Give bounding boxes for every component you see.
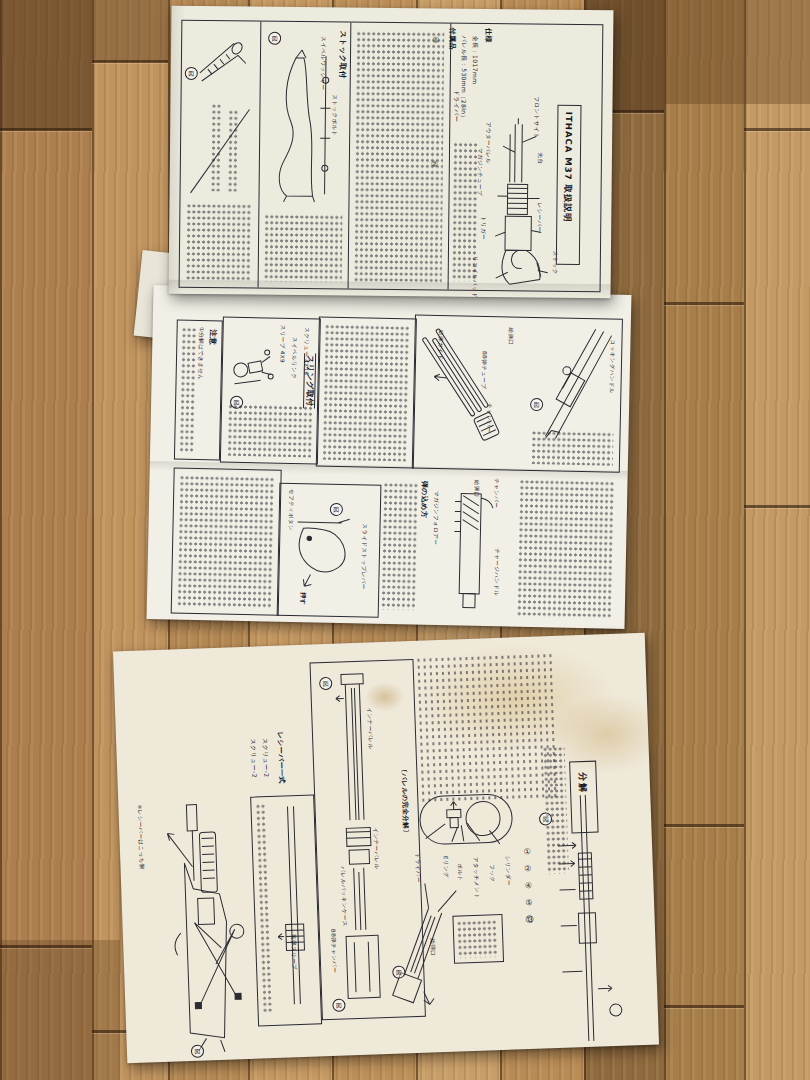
caution-panel: 注意 ①分解はできません: [174, 320, 223, 461]
sling-part-label: スリーブ 4X9: [279, 325, 285, 363]
floor-shadow-patch: [92, 0, 168, 62]
plank-joint: [664, 302, 744, 305]
trigger-guard-diagram: [286, 516, 352, 597]
stock-bolt-label: ストックボルト: [331, 94, 337, 136]
trigger-panel: セフティボタン 図 スライドストップレバー 押す: [277, 483, 382, 618]
text-block: [517, 479, 616, 619]
caution-text: ①分解はできません: [197, 327, 204, 380]
cylinder-part-label: Eリング: [442, 856, 448, 878]
feed-chamber-diagram: [383, 877, 464, 1014]
barrel-caption: 〔バレルの完全分解〕: [400, 766, 409, 836]
sleeve-label: 装弾スリーブ: [290, 934, 297, 970]
caution-heading: 注意: [209, 329, 217, 345]
floor-plank: [744, 0, 810, 1080]
circled-number: ⑬: [520, 911, 539, 929]
text-block: [186, 203, 253, 282]
cylinder-part-label: フック: [489, 864, 495, 882]
plank-joint: [0, 128, 92, 131]
plank-joint: [744, 128, 810, 131]
feed-tube-diagram: [417, 320, 520, 466]
text-panel: [316, 317, 417, 469]
floor-shadow-patch: [664, 0, 810, 104]
receiver-note: ※レシーバーはこっち側: [136, 804, 144, 869]
figure-marker: 図: [191, 1044, 204, 1057]
feed-part-label: BB弾チューブ: [480, 351, 486, 389]
cylinder-part-label: アタッチメント: [472, 857, 479, 899]
column-rule: [258, 22, 262, 288]
feed-port-label: 給弾口: [429, 938, 435, 956]
circled-number: ④: [519, 877, 538, 895]
muzzle-diagram: [194, 29, 251, 92]
loading-panel: 弾の込め方: [377, 476, 432, 617]
text-panel: [171, 467, 282, 615]
gun-part-label: フロントサイト: [533, 96, 539, 138]
gun-part-label: リコイルパッド: [471, 256, 477, 298]
push-label: 押す: [300, 592, 306, 605]
gun-part-label: マガジンチューブ: [477, 148, 483, 196]
feed-part-label: 給弾ガイド: [437, 330, 443, 360]
receiver-set-heading: レシーバー一式: [276, 732, 285, 785]
barrel-strip-diagram: [554, 792, 623, 1044]
feed-part-label: 給弾口: [507, 327, 513, 345]
chamber-section-diagram: [443, 487, 498, 614]
text-block: [179, 327, 198, 453]
text-block: [381, 482, 418, 611]
gun-part-label: アウターバレル: [485, 122, 491, 164]
figure-marker: 図: [268, 32, 281, 45]
manual-page-bottom: レシーバー一式 スクリュー-2 スクリュー-2 ※レシーバーはこっち側 図: [113, 633, 659, 1063]
cylinder-part-label: シリンダー: [504, 856, 511, 886]
floor-plank: [664, 0, 746, 1080]
plank-joint: [744, 505, 810, 508]
text-block: [531, 430, 614, 466]
stock-diagram: [264, 48, 340, 207]
divider-diagonal: [187, 105, 254, 198]
numbered-parts-column: ① ② ④ ⑤ ⑬: [518, 843, 539, 929]
text-block: [264, 214, 343, 283]
sleeve-diagram: [269, 804, 316, 1015]
photo-of-manual-on-wood-floor: { "figure_marker": "図", "title": "ITHACA…: [0, 0, 810, 1080]
figure-marker: 図: [330, 503, 343, 516]
manual-title-box: ITHACA M37 取扱説明: [556, 105, 582, 265]
circled-number: ①: [518, 843, 537, 861]
receiver-panel: ※レシーバーはこっち側 図: [134, 795, 255, 1061]
text-block: [322, 324, 411, 462]
spec-line: バレル長：530mm（28in）: [460, 36, 467, 121]
column-rule: [448, 24, 452, 290]
spec-line: 全長：1017mm: [472, 36, 479, 85]
sling-part-label: スイベルリンク: [291, 337, 297, 379]
section-panel: 給弾口 チャンバー マガジンフォロアー チャージハンドル: [429, 475, 514, 619]
plank-joint: [0, 945, 92, 948]
text-block: [457, 919, 498, 958]
plank-joint: [664, 824, 744, 827]
sling-panel: 図 スリーブ 4X9 スイベルリンク スクリュー 4X18 スリング取付: [220, 316, 321, 464]
floor-shadow-patch: [0, 0, 92, 130]
sling-heading: スリング取付: [303, 353, 316, 408]
feed-part-label: コッキングハンドル: [608, 340, 615, 394]
floor-plank: [0, 0, 94, 1080]
column-rule: [348, 23, 352, 289]
barrel-part-label: インナーバレル: [372, 827, 379, 869]
spec-heading: 仕様: [484, 28, 491, 43]
gun-part-label: レシーバー: [536, 203, 542, 233]
manual-title: ITHACA M37 取扱説明: [563, 112, 573, 223]
top-page-frame: 図 図 ストック取付 スイベルワッシャー ストックボルト ① ② 仕: [179, 20, 604, 292]
barrel-part-label: インナーバレル: [366, 707, 373, 749]
manual-page-middle: 注意 ①分解はできません 図 スリーブ 4X9 スイベルリンク スクリュー 4X…: [147, 285, 632, 629]
figure-marker: 図: [185, 67, 198, 80]
circled-marker: ①: [432, 31, 439, 48]
gun-part-label: トリガー: [480, 216, 486, 240]
receiver-set-item: スクリュー-2: [262, 738, 269, 778]
barrel-part-label: BB弾チャンバー: [330, 929, 337, 973]
receiver-diagram: [146, 801, 255, 1054]
loading-heading: 弾の込め方: [420, 481, 428, 518]
plank-joint: [664, 1005, 744, 1008]
feed-part-label: チャンバー: [486, 403, 492, 433]
barrel-part-label: バレルパッキンケース: [340, 866, 348, 926]
circled-marker: ②: [431, 155, 438, 172]
accessory-item: ドライバー: [453, 90, 459, 123]
disassembly-heading: 分解: [577, 772, 587, 794]
plank-joint: [92, 60, 168, 63]
cocking-handle-diagram: [531, 326, 617, 446]
sling-swivel-diagram: [228, 336, 275, 397]
cylinder-diagram: [416, 789, 518, 850]
section-label: マガジンフォロアー: [432, 491, 439, 545]
circled-number: ⑤: [520, 894, 539, 912]
accessories-heading: 付属品: [448, 28, 455, 50]
text-block: [415, 652, 560, 803]
text-block: [177, 475, 276, 609]
circled-number: ②: [519, 860, 538, 878]
sleeve-panel: 装弾スリーブ: [250, 794, 322, 1026]
text-block: [227, 404, 312, 458]
manual-page-top: 図 図 ストック取付 スイベルワッシャー ストックボルト ① ② 仕: [169, 6, 614, 299]
floor-shadow-patch: [0, 940, 120, 1080]
gun-part-label: 先台: [537, 153, 543, 165]
trigger-part-label: スライドストップレバー: [360, 523, 367, 589]
receiver-set-item: スクリュー-2: [250, 738, 257, 778]
feed-tube-panel: 給弾口 BB弾チューブ チャンバー 給弾ガイド コッキングハンドル 図: [412, 315, 623, 473]
